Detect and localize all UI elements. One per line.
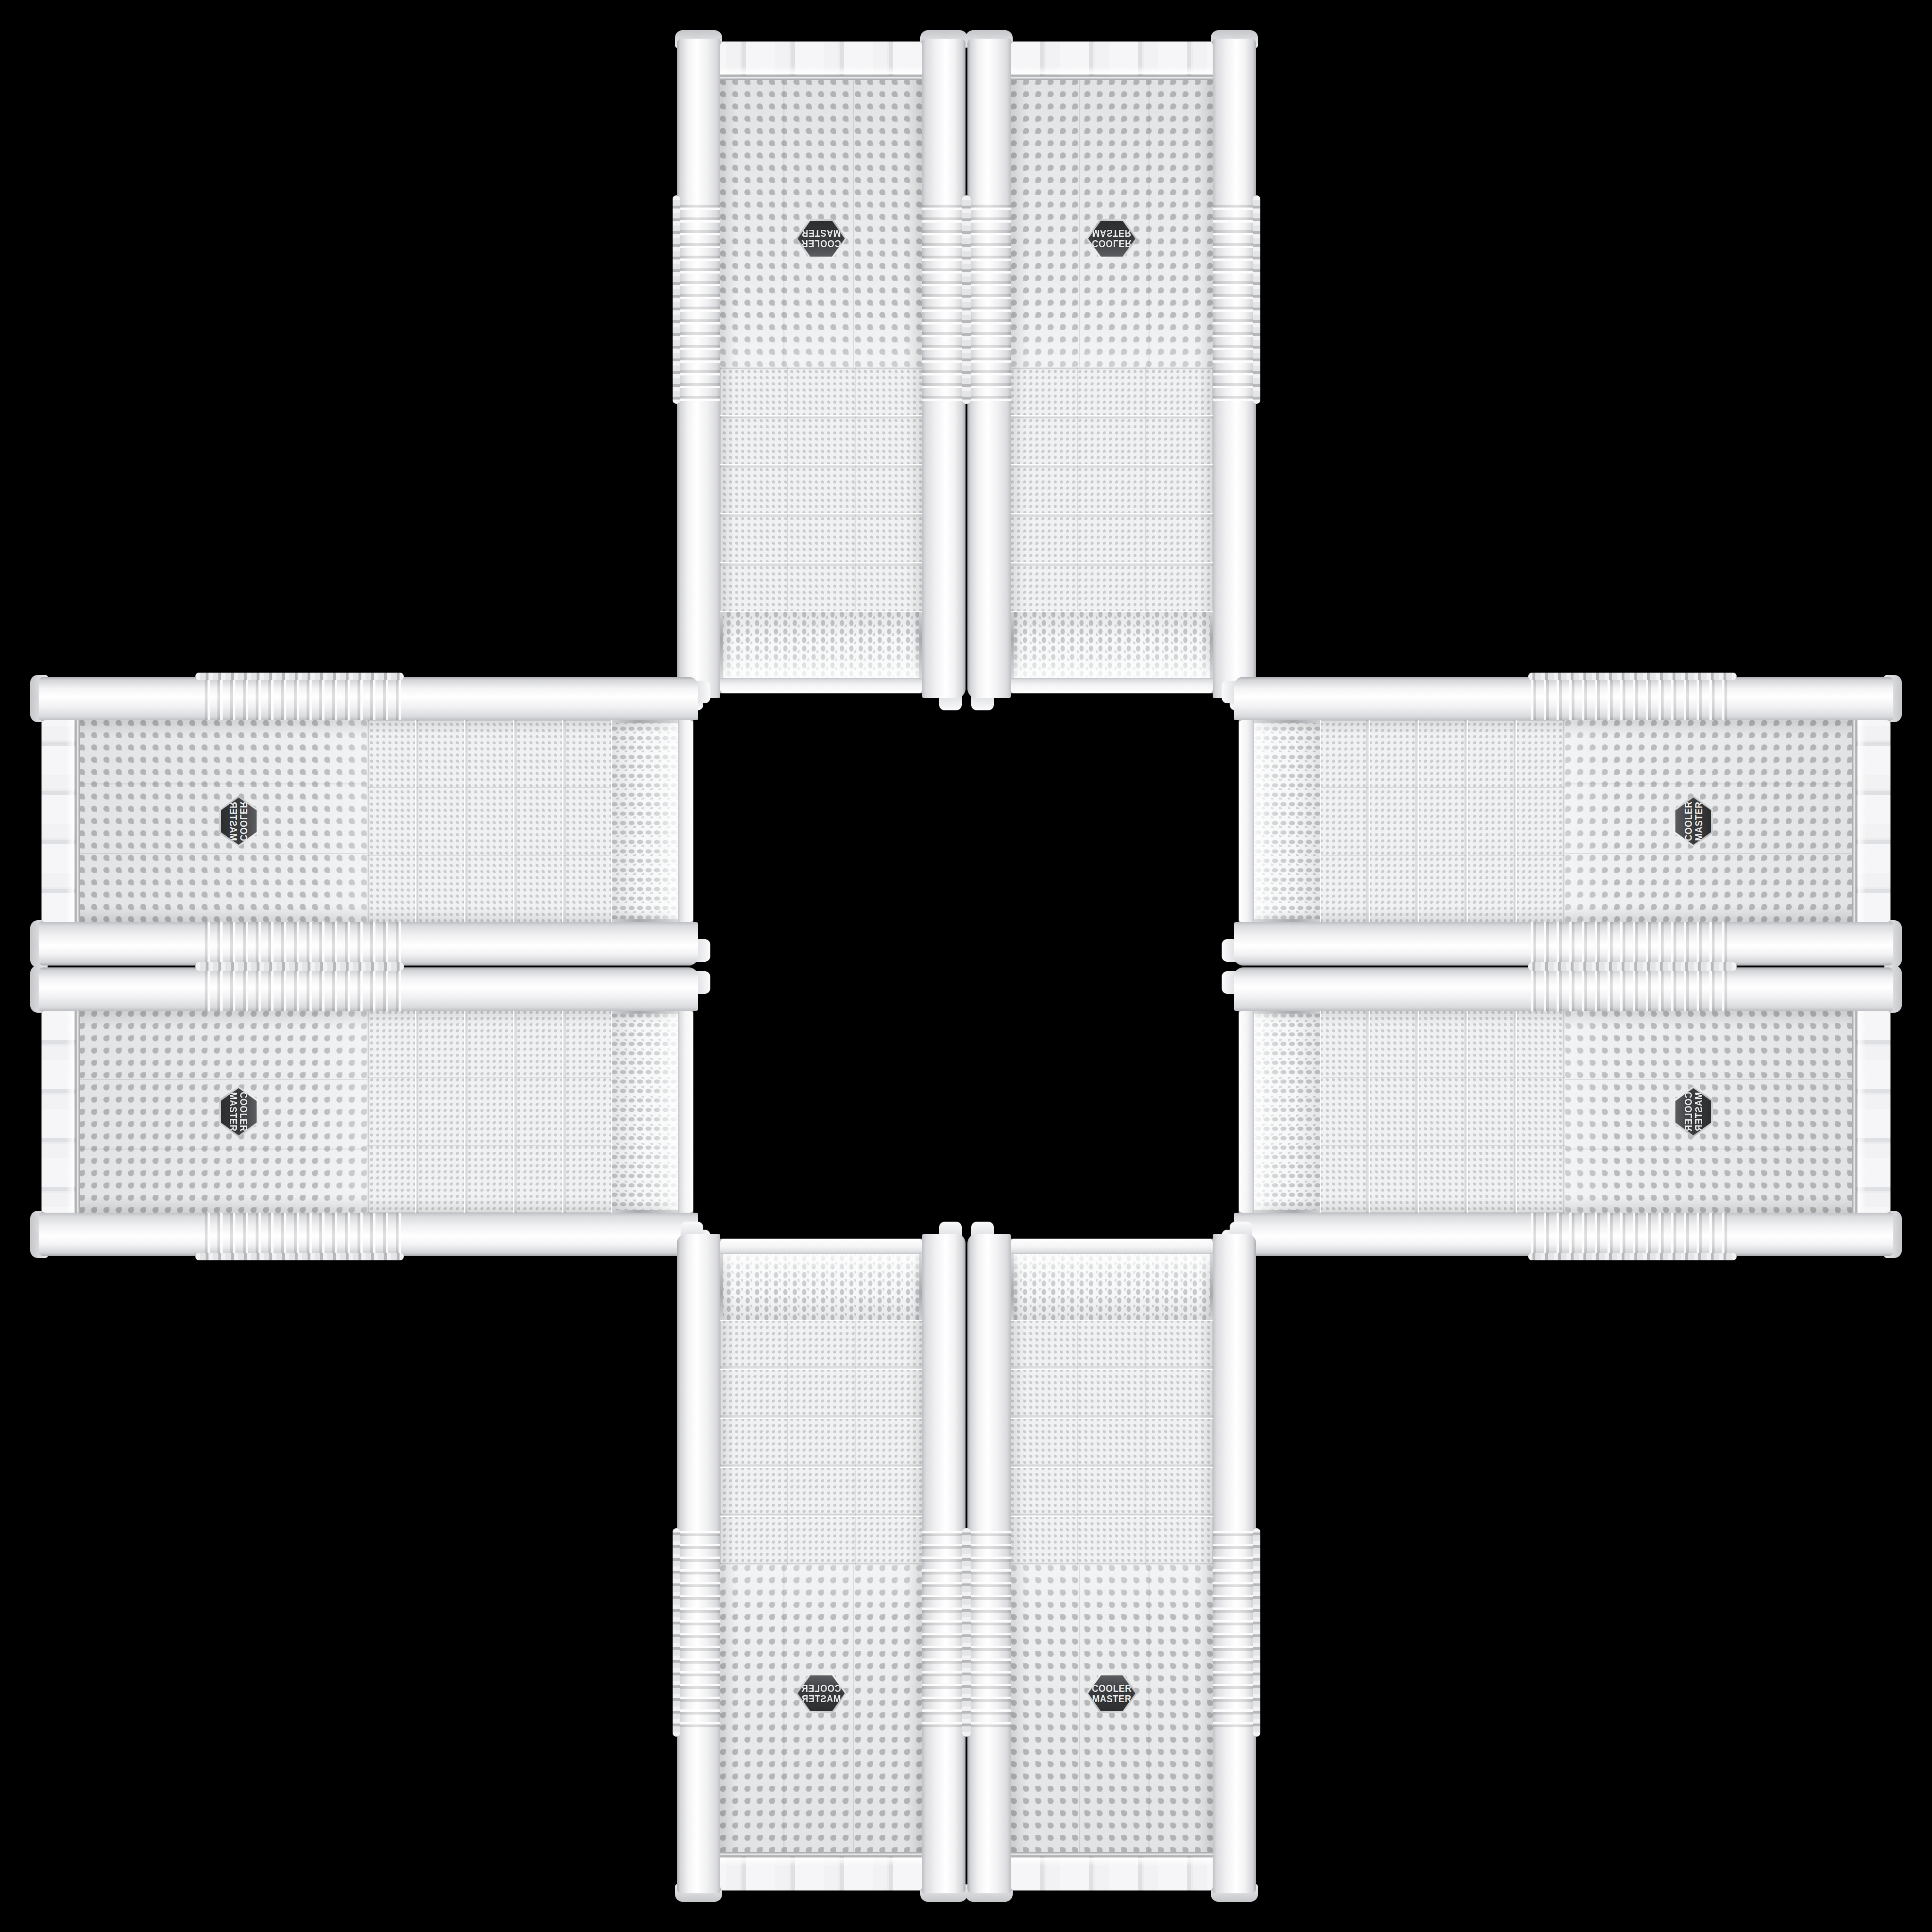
cooler-master-logo: COOLER MASTER: [798, 1675, 845, 1711]
drive-bay-covers: [720, 367, 922, 612]
side-rail-right: [1234, 1213, 1893, 1256]
side-rail-left: [39, 967, 698, 1011]
front-panel: COOLER MASTER: [42, 1011, 693, 1213]
pc-case-right-top: COOLER MASTER: [1234, 677, 1894, 966]
cooler-master-logo: COOLER MASTER: [1675, 798, 1711, 845]
curved-top-mesh: [612, 1011, 678, 1213]
rail-grip-ribs-left: [922, 198, 966, 401]
cooler-master-logo-ring: COOLER MASTER: [796, 1674, 847, 1713]
cooler-master-logo: COOLER MASTER: [221, 798, 257, 845]
scalloped-bottom-cap: [42, 720, 75, 922]
side-rail-left: [1234, 922, 1893, 966]
brand-line1: COOLER: [1683, 801, 1693, 841]
brand-line1: COOLER: [1683, 1092, 1693, 1132]
rail-grip-ribs-right: [198, 1213, 401, 1256]
chrome-trim: [1011, 75, 1213, 80]
chrome-trim: [1852, 1011, 1857, 1213]
rail-grip-ribs-left: [1531, 967, 1734, 1011]
rail-grip-ribs-right: [677, 198, 720, 401]
cooler-master-logo-ring: COOLER MASTER: [796, 219, 847, 258]
side-rail-left: [967, 1234, 1011, 1893]
front-intake-mesh: COOLER MASTER: [1011, 80, 1213, 367]
rail-grip-ribs-left: [198, 967, 401, 1011]
chrome-trim: [1852, 720, 1857, 922]
curved-top-mesh: [1011, 1254, 1213, 1320]
scalloped-bottom-cap: [720, 1857, 922, 1890]
side-rail-left: [922, 39, 966, 698]
chrome-trim: [75, 720, 80, 922]
front-panel: COOLER MASTER: [720, 42, 922, 693]
brand-line2: MASTER: [1693, 1092, 1703, 1131]
drive-bay-covers: [367, 720, 612, 922]
front-panel: COOLER MASTER: [720, 1239, 922, 1890]
brand-line1: COOLER: [1092, 1683, 1132, 1693]
brand-line2: MASTER: [228, 801, 238, 841]
top-lip: [1011, 1239, 1213, 1254]
drive-bay-covers: [1011, 1320, 1213, 1565]
drive-bay-covers: [367, 1011, 612, 1213]
top-lip: [678, 1011, 693, 1213]
rail-grip-ribs-left: [198, 922, 401, 966]
side-rail-right: [39, 677, 698, 720]
pc-case-left-top: COOLER MASTER: [38, 677, 698, 966]
side-rail-right: [1213, 39, 1256, 698]
scalloped-bottom-cap: [1857, 720, 1890, 922]
brand-line2: MASTER: [1092, 1693, 1131, 1703]
pc-case-bottom-right: COOLER MASTER: [967, 1234, 1256, 1894]
pc-case-top-right: COOLER MASTER: [967, 38, 1256, 698]
front-panel: COOLER MASTER: [1239, 1011, 1890, 1213]
chrome-trim: [720, 75, 922, 80]
cooler-master-logo-ring: COOLER MASTER: [219, 796, 258, 847]
side-rail-right: [677, 1234, 720, 1893]
front-intake-mesh: COOLER MASTER: [1565, 720, 1852, 922]
rail-grip-ribs-left: [922, 1531, 966, 1734]
curved-top-mesh: [1254, 720, 1320, 922]
rail-grip-ribs-right: [1531, 677, 1734, 720]
drive-bay-covers: [1320, 1011, 1565, 1213]
side-rail-right: [1234, 677, 1893, 720]
front-panel: COOLER MASTER: [1239, 720, 1890, 922]
curved-top-mesh: [1011, 612, 1213, 678]
cooler-master-logo: COOLER MASTER: [798, 221, 845, 257]
curved-top-mesh: [1254, 1011, 1320, 1213]
curved-top-mesh: [720, 612, 922, 678]
brand-line2: MASTER: [228, 1092, 238, 1131]
scalloped-bottom-cap: [1011, 1857, 1213, 1890]
cooler-master-logo-ring: COOLER MASTER: [1086, 1674, 1137, 1713]
drive-bay-covers: [1011, 367, 1213, 612]
cooler-master-logo-ring: COOLER MASTER: [1086, 219, 1137, 258]
rail-grip-ribs-right: [1213, 198, 1256, 401]
brand-line1: COOLER: [239, 801, 249, 841]
side-rail-left: [967, 39, 1011, 698]
pc-case-right-bottom: COOLER MASTER: [1234, 967, 1894, 1256]
rail-grip-ribs-right: [1213, 1531, 1256, 1734]
side-rail-left: [39, 922, 698, 966]
scalloped-bottom-cap: [1011, 42, 1213, 75]
cooler-master-logo: COOLER MASTER: [221, 1088, 257, 1135]
cooler-master-logo-ring: COOLER MASTER: [219, 1086, 258, 1137]
front-intake-mesh: COOLER MASTER: [720, 1565, 922, 1852]
rail-grip-ribs-left: [967, 1531, 1011, 1734]
scalloped-bottom-cap: [720, 42, 922, 75]
brand-line1: COOLER: [239, 1092, 249, 1132]
brand-line2: MASTER: [1693, 801, 1703, 841]
side-rail-right: [39, 1213, 698, 1256]
rail-grip-ribs-right: [198, 677, 401, 720]
side-rail-left: [1234, 967, 1893, 1011]
front-intake-mesh: COOLER MASTER: [1011, 1565, 1213, 1852]
scene: COOLER MASTER COOL: [0, 0, 1932, 1932]
scalloped-bottom-cap: [1857, 1011, 1890, 1213]
side-rail-left: [922, 1234, 966, 1893]
chrome-trim: [720, 1852, 922, 1857]
side-rail-right: [1213, 1234, 1256, 1893]
brand-line2: MASTER: [801, 228, 841, 238]
front-intake-mesh: COOLER MASTER: [1565, 1011, 1852, 1213]
chrome-trim: [75, 1011, 80, 1213]
top-lip: [720, 1239, 922, 1254]
front-panel: COOLER MASTER: [1011, 42, 1213, 693]
chrome-trim: [1011, 1852, 1213, 1857]
brand-line2: MASTER: [801, 1693, 841, 1703]
top-lip: [720, 678, 922, 693]
cooler-master-logo: COOLER MASTER: [1088, 221, 1135, 257]
rail-grip-ribs-right: [1531, 1213, 1734, 1256]
front-intake-mesh: COOLER MASTER: [720, 80, 922, 367]
front-intake-mesh: COOLER MASTER: [80, 720, 367, 922]
pc-case-top-left: COOLER MASTER: [677, 38, 966, 698]
cooler-master-logo-ring: COOLER MASTER: [1674, 796, 1713, 847]
curved-top-mesh: [720, 1254, 922, 1320]
side-rail-right: [677, 39, 720, 698]
scalloped-bottom-cap: [42, 1011, 75, 1213]
rail-grip-ribs-right: [677, 1531, 720, 1734]
drive-bay-covers: [720, 1320, 922, 1565]
top-lip: [1239, 1011, 1254, 1213]
front-panel: COOLER MASTER: [42, 720, 693, 922]
top-lip: [1239, 720, 1254, 922]
cooler-master-logo: COOLER MASTER: [1088, 1675, 1135, 1711]
brand-line1: COOLER: [1092, 239, 1132, 249]
brand-line1: COOLER: [801, 239, 841, 249]
rail-grip-ribs-left: [967, 198, 1011, 401]
cooler-master-logo: COOLER MASTER: [1675, 1088, 1711, 1135]
brand-line2: MASTER: [1092, 228, 1131, 238]
rail-grip-ribs-left: [1531, 922, 1734, 966]
top-lip: [678, 720, 693, 922]
pc-case-bottom-left: COOLER MASTER: [677, 1234, 966, 1894]
top-lip: [1011, 678, 1213, 693]
front-panel: COOLER MASTER: [1011, 1239, 1213, 1890]
drive-bay-covers: [1320, 720, 1565, 922]
cooler-master-logo-ring: COOLER MASTER: [1674, 1086, 1713, 1137]
brand-line1: COOLER: [801, 1683, 841, 1693]
front-intake-mesh: COOLER MASTER: [80, 1011, 367, 1213]
curved-top-mesh: [612, 720, 678, 922]
pc-case-left-bottom: COOLER MASTER: [38, 967, 698, 1256]
